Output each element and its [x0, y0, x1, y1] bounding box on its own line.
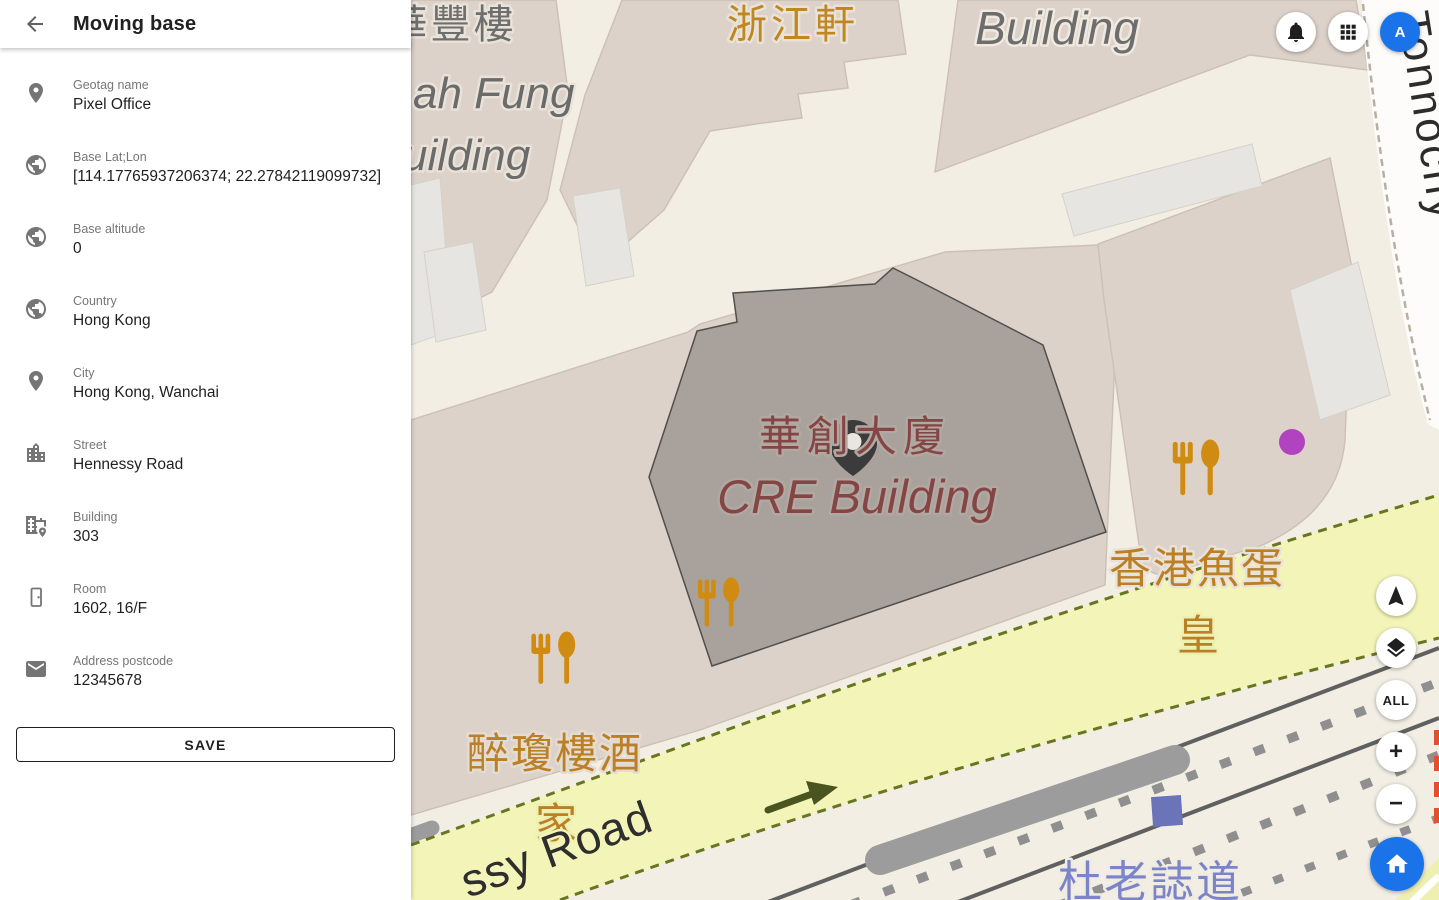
navigation-arrow-icon — [1384, 584, 1408, 608]
field-base-altitude[interactable]: Base altitude 0 — [0, 214, 411, 286]
globe-icon — [24, 153, 48, 177]
field-value: 12345678 — [73, 671, 173, 691]
home-button[interactable] — [1370, 837, 1424, 891]
field-label: Building — [73, 506, 117, 525]
field-street[interactable]: Street Hennessy Road — [0, 430, 411, 502]
map-label-fishball-2: 皇 — [1177, 612, 1219, 659]
back-button[interactable] — [21, 10, 49, 38]
map-label-wah-fung-en1: ah Fung — [413, 69, 575, 118]
place-icon — [24, 369, 48, 393]
map-graphics: 華豐樓 ah Fung uilding 浙江軒 Building 華創大廈 CR… — [411, 0, 1439, 900]
field-label: Country — [73, 290, 151, 309]
field-value: 0 — [73, 239, 145, 259]
map-purple-poi-dot — [1279, 429, 1305, 455]
field-value: Hennessy Road — [73, 455, 183, 475]
field-label: Base altitude — [73, 218, 145, 237]
field-label: Geotag name — [73, 74, 151, 93]
field-value: Hong Kong, Wanchai — [73, 383, 219, 403]
city-icon — [24, 441, 48, 465]
field-base-latlon[interactable]: Base Lat;Lon [114.17765937206374; 22.278… — [0, 142, 411, 214]
page-title: Moving base — [73, 13, 196, 36]
all-layers-button[interactable]: ALL — [1376, 680, 1416, 720]
layers-button[interactable] — [1376, 628, 1416, 668]
map-label-tut-lo-chi: 杜老誌道 — [1058, 858, 1242, 900]
field-label: Base Lat;Lon — [73, 146, 381, 165]
field-label: City — [73, 362, 219, 381]
map-transit-square-icon — [1151, 795, 1183, 827]
map-canvas[interactable]: 華豐樓 ah Fung uilding 浙江軒 Building 華創大廈 CR… — [411, 0, 1439, 900]
place-icon — [24, 81, 48, 105]
map-label-cre-cjk: 華創大廈 — [759, 413, 951, 460]
apps-grid-icon — [1337, 21, 1359, 43]
field-label: Room — [73, 578, 147, 597]
zoom-out-button[interactable]: − — [1376, 784, 1416, 824]
map-label-fishball-1: 香港魚蛋 — [1109, 545, 1285, 592]
notifications-button[interactable] — [1276, 12, 1316, 52]
field-value: Pixel Office — [73, 95, 151, 115]
account-avatar-button[interactable]: A — [1380, 12, 1420, 52]
map-label-wah-fung-cjk: 華豐樓 — [411, 3, 517, 47]
layers-icon — [1384, 636, 1408, 660]
field-country[interactable]: Country Hong Kong — [0, 286, 411, 358]
bell-icon — [1284, 20, 1308, 44]
field-list: Geotag name Pixel Office Base Lat;Lon [1… — [0, 48, 411, 718]
field-label: Address postcode — [73, 650, 173, 669]
field-city[interactable]: City Hong Kong, Wanchai — [0, 358, 411, 430]
map-label-building: Building — [975, 2, 1139, 54]
field-room[interactable]: Room 1602, 16/F — [0, 574, 411, 646]
building-pin-icon — [24, 513, 48, 537]
details-panel: Moving base Geotag name Pixel Office Bas… — [0, 0, 411, 900]
map-label-cre-en: CRE Building — [717, 470, 997, 523]
field-geotag-name[interactable]: Geotag name Pixel Office — [0, 70, 411, 142]
compass-button[interactable] — [1376, 576, 1416, 616]
field-label: Street — [73, 434, 183, 453]
email-icon — [24, 657, 48, 681]
map-label-wah-fung-en2: uilding — [411, 131, 531, 180]
app-root: 華豐樓 ah Fung uilding 浙江軒 Building 華創大廈 CR… — [0, 0, 1439, 900]
avatar: A — [1395, 24, 1406, 41]
zoom-in-button[interactable]: + — [1376, 732, 1416, 772]
home-icon — [1384, 851, 1410, 877]
field-value: [114.17765937206374; 22.27842119099732] — [73, 167, 381, 187]
arrow-back-icon — [23, 12, 47, 36]
field-building[interactable]: Building 303 — [0, 502, 411, 574]
map-label-zhejiang-heen: 浙江軒 — [727, 3, 859, 47]
panel-header: Moving base — [0, 0, 411, 48]
door-icon — [24, 585, 48, 609]
field-value: Hong Kong — [73, 311, 151, 331]
globe-icon — [24, 225, 48, 249]
save-button[interactable]: SAVE — [16, 727, 395, 762]
field-value: 1602, 16/F — [73, 599, 147, 619]
map-label-restaurant-1: 醉瓊樓酒 — [467, 730, 643, 777]
globe-icon — [24, 297, 48, 321]
field-value: 303 — [73, 527, 117, 547]
field-address-postcode[interactable]: Address postcode 12345678 — [0, 646, 411, 718]
apps-grid-button[interactable] — [1328, 12, 1368, 52]
